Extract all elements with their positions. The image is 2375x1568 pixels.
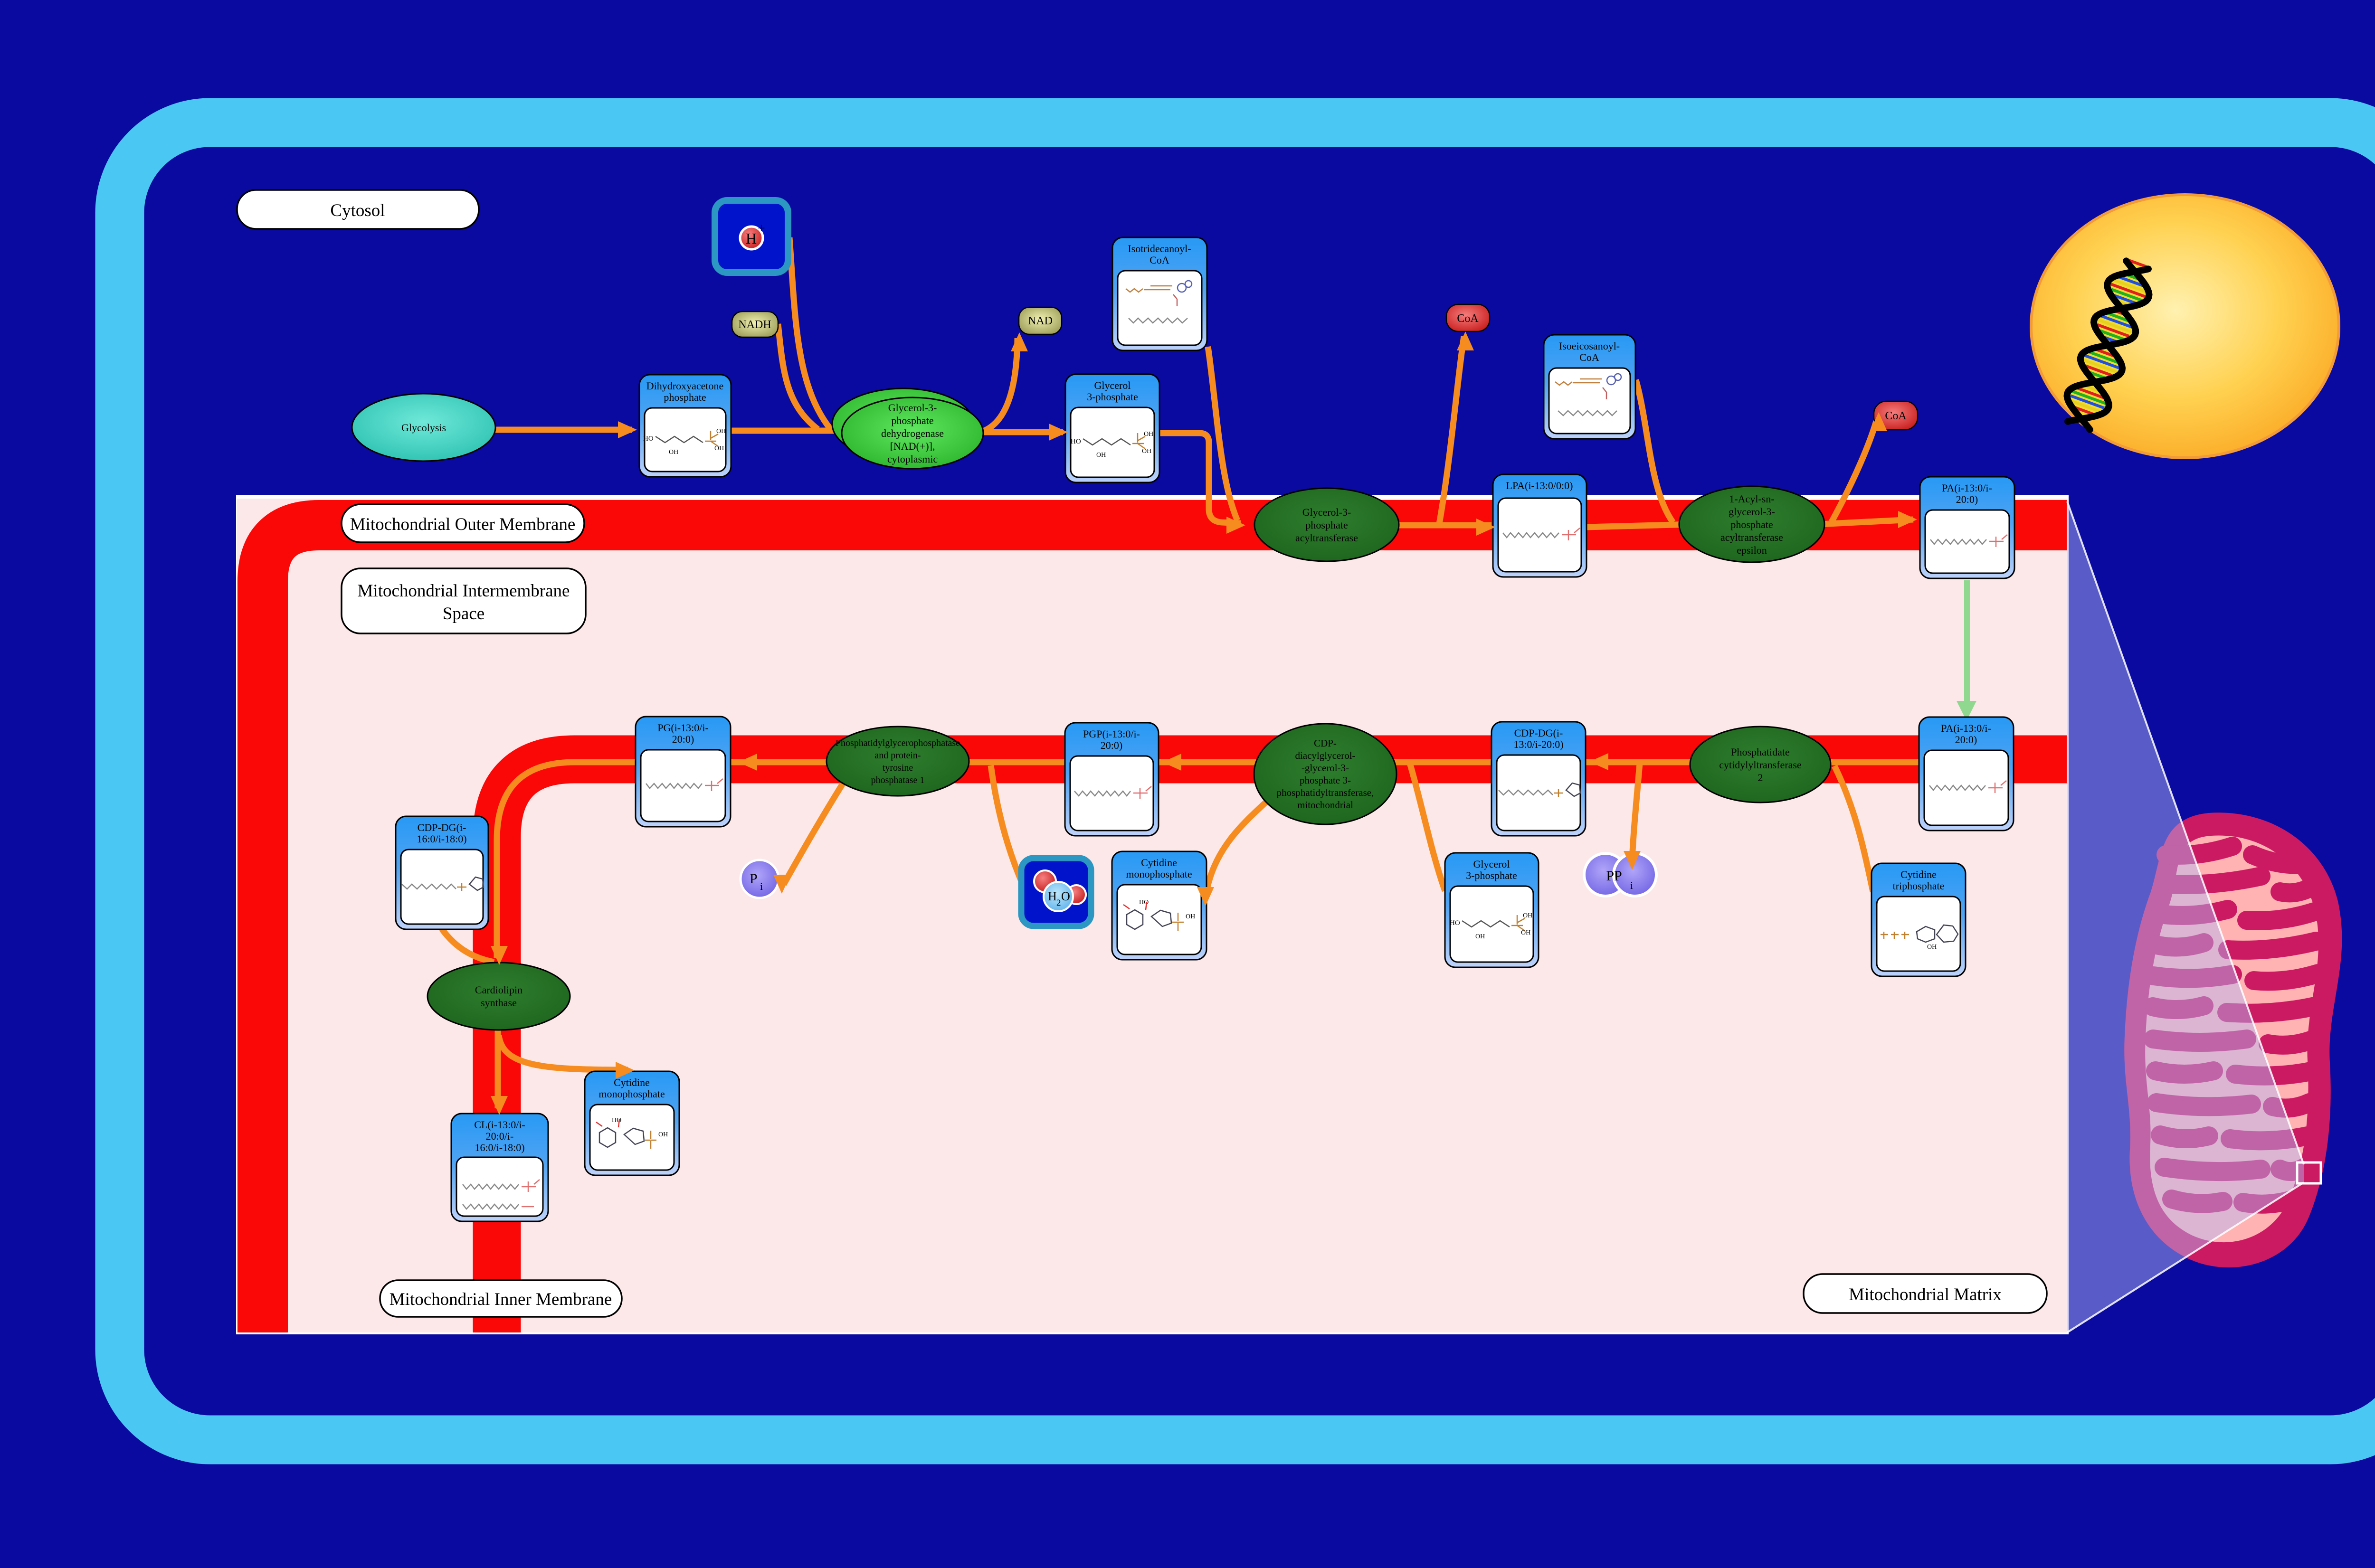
- svg-text:Phosphatidylglycerophosphatase: Phosphatidylglycerophosphatase: [836, 738, 960, 748]
- svg-text:20:0): 20:0): [1101, 739, 1122, 751]
- svg-text:synthase: synthase: [481, 997, 517, 1009]
- svg-text:CDP-: CDP-: [1314, 737, 1337, 749]
- svg-text:phosphate 3-: phosphate 3-: [1300, 775, 1351, 786]
- svg-text:Dihydroxyacetone: Dihydroxyacetone: [646, 380, 724, 392]
- svg-text:Mitochondrial Matrix: Mitochondrial Matrix: [1849, 1285, 2002, 1304]
- svg-text:3-phosphate: 3-phosphate: [1466, 869, 1517, 881]
- svg-text:epsilon: epsilon: [1737, 544, 1767, 556]
- svg-text:HO: HO: [1071, 438, 1081, 445]
- svg-text:CDP-DG(i-: CDP-DG(i-: [418, 822, 466, 833]
- svg-text:3-phosphate: 3-phosphate: [1087, 391, 1138, 403]
- svg-text:phosphate: phosphate: [891, 415, 933, 426]
- svg-text:HO: HO: [643, 435, 654, 443]
- svg-text:OH: OH: [1927, 944, 1937, 951]
- svg-text:OH: OH: [1186, 913, 1195, 920]
- svg-text:HO: HO: [1450, 919, 1460, 927]
- svg-text:CoA: CoA: [1885, 410, 1907, 422]
- svg-text:CDP-DG(i-: CDP-DG(i-: [1514, 727, 1563, 739]
- svg-text:cytoplasmic: cytoplasmic: [887, 453, 938, 465]
- svg-text:OH: OH: [1521, 929, 1530, 936]
- svg-text:-glycerol-3-: -glycerol-3-: [1301, 762, 1349, 774]
- svg-text:PA(i-13:0/i-: PA(i-13:0/i-: [1942, 482, 1992, 494]
- svg-text:OH: OH: [658, 1131, 668, 1138]
- svg-text:P: P: [750, 871, 758, 887]
- svg-text:Mitochondrial Intermembrane: Mitochondrial Intermembrane: [358, 581, 570, 601]
- svg-text:2: 2: [1056, 898, 1061, 908]
- svg-text:Isotridecanoyl-: Isotridecanoyl-: [1128, 243, 1191, 255]
- svg-text:Cytidine: Cytidine: [1141, 857, 1177, 869]
- svg-text:OH: OH: [716, 428, 726, 435]
- svg-text:monophosphate: monophosphate: [1126, 868, 1192, 880]
- svg-text:1-Acyl-sn-: 1-Acyl-sn-: [1729, 493, 1774, 505]
- svg-text:mitochondrial: mitochondrial: [1297, 799, 1353, 811]
- svg-text:Glycerol: Glycerol: [1473, 858, 1510, 870]
- svg-text:i: i: [1630, 879, 1633, 891]
- svg-text:Glycerol: Glycerol: [1094, 379, 1131, 391]
- svg-text:Space: Space: [443, 604, 484, 623]
- svg-text:Mitochondrial Inner Membrane: Mitochondrial Inner Membrane: [389, 1290, 612, 1309]
- svg-text:monophosphate: monophosphate: [598, 1088, 665, 1100]
- svg-text:PGP(i-13:0/i-: PGP(i-13:0/i-: [1083, 728, 1140, 740]
- svg-text:[NAD(+)],: [NAD(+)],: [890, 440, 935, 452]
- svg-text:+: +: [758, 221, 765, 236]
- svg-text:16:0/i-18:0): 16:0/i-18:0): [475, 1142, 524, 1153]
- svg-text:13:0/i-20:0): 13:0/i-20:0): [1513, 738, 1563, 750]
- svg-text:16:0/i-18:0): 16:0/i-18:0): [417, 833, 466, 845]
- svg-text:LPA(i-13:0/0:0): LPA(i-13:0/0:0): [1506, 480, 1573, 491]
- svg-text:phosphate: phosphate: [664, 391, 706, 403]
- svg-text:and protein-: and protein-: [874, 750, 921, 761]
- svg-text:Cytosol: Cytosol: [330, 201, 385, 220]
- svg-text:CoA: CoA: [1149, 254, 1169, 266]
- svg-text:Phosphatidate: Phosphatidate: [1731, 746, 1789, 758]
- svg-text:2: 2: [1758, 772, 1763, 784]
- svg-text:20:0): 20:0): [672, 733, 694, 745]
- svg-text:acyltransferase: acyltransferase: [1720, 531, 1783, 543]
- svg-text:CL(i-13:0/i-: CL(i-13:0/i-: [474, 1119, 525, 1131]
- svg-text:phosphate: phosphate: [1730, 519, 1773, 530]
- svg-text:PP: PP: [1606, 868, 1622, 884]
- svg-text:CoA: CoA: [1457, 312, 1479, 325]
- svg-text:Cytidine: Cytidine: [614, 1077, 650, 1088]
- svg-text:phosphate: phosphate: [1305, 519, 1348, 531]
- svg-text:glycerol-3-: glycerol-3-: [1729, 506, 1775, 518]
- svg-text:Glycolysis: Glycolysis: [401, 422, 446, 434]
- svg-text:phosphatidyltransferase,: phosphatidyltransferase,: [1277, 787, 1374, 798]
- svg-text:20:0): 20:0): [1955, 734, 1977, 746]
- svg-text:NAD: NAD: [1028, 315, 1053, 327]
- svg-text:O: O: [1061, 889, 1070, 903]
- svg-text:OH: OH: [714, 445, 724, 452]
- svg-text:dehydrogenase: dehydrogenase: [881, 427, 944, 439]
- svg-text:HO: HO: [612, 1117, 621, 1124]
- svg-text:diacylglycerol-: diacylglycerol-: [1295, 750, 1355, 761]
- svg-text:H: H: [1048, 889, 1057, 903]
- svg-text:OH: OH: [1142, 448, 1151, 455]
- svg-text:PG(i-13:0/i-: PG(i-13:0/i-: [657, 722, 709, 734]
- svg-text:OH: OH: [1096, 452, 1106, 459]
- svg-text:i: i: [760, 880, 763, 892]
- svg-text:Isoeicosanoyl-: Isoeicosanoyl-: [1559, 340, 1620, 352]
- svg-text:NADH: NADH: [738, 319, 771, 331]
- svg-text:OH: OH: [1475, 933, 1485, 940]
- svg-text:HO: HO: [1139, 899, 1149, 906]
- svg-text:triphosphate: triphosphate: [1893, 880, 1945, 892]
- svg-text:Cytidine: Cytidine: [1900, 869, 1937, 880]
- svg-text:Mitochondrial Outer Membrane: Mitochondrial Outer Membrane: [350, 515, 576, 534]
- svg-text:acyltransferase: acyltransferase: [1295, 532, 1358, 544]
- svg-text:Glycerol-3-: Glycerol-3-: [888, 402, 937, 414]
- svg-text:Glycerol-3-: Glycerol-3-: [1302, 506, 1351, 518]
- svg-text:OH: OH: [1144, 431, 1153, 438]
- svg-text:tyrosine: tyrosine: [883, 763, 913, 773]
- svg-text:OH: OH: [669, 449, 678, 456]
- svg-text:phosphatase 1: phosphatase 1: [871, 775, 925, 785]
- svg-text:PA(i-13:0/i-: PA(i-13:0/i-: [1941, 722, 1991, 734]
- svg-text:Cardiolipin: Cardiolipin: [475, 984, 522, 996]
- svg-text:20:0): 20:0): [1956, 493, 1978, 505]
- svg-text:CoA: CoA: [1579, 351, 1599, 363]
- svg-text:H: H: [746, 230, 757, 247]
- svg-text:OH: OH: [1523, 912, 1532, 919]
- svg-text:20:0/i-: 20:0/i-: [486, 1130, 514, 1142]
- svg-text:cytidylyltransferase: cytidylyltransferase: [1719, 759, 1802, 771]
